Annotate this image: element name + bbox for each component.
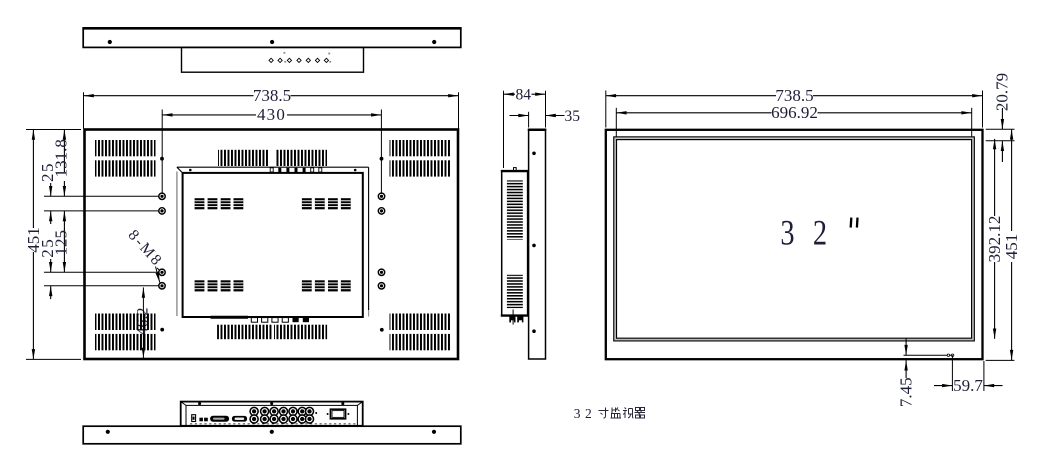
svg-text:696.92: 696.92 bbox=[771, 103, 818, 122]
svg-text:738.5: 738.5 bbox=[253, 86, 291, 105]
svg-text:451: 451 bbox=[1002, 234, 1021, 260]
svg-text:7.45: 7.45 bbox=[897, 377, 916, 407]
svg-text:84: 84 bbox=[515, 87, 531, 104]
svg-text:25: 25 bbox=[38, 162, 57, 182]
svg-text:3: 3 bbox=[780, 212, 794, 252]
svg-text:3: 3 bbox=[574, 406, 581, 421]
svg-text:35: 35 bbox=[565, 108, 581, 125]
svg-text:25: 25 bbox=[38, 238, 57, 258]
svg-text:2: 2 bbox=[813, 212, 827, 252]
svg-text:2: 2 bbox=[585, 406, 592, 421]
svg-text:59.7: 59.7 bbox=[953, 376, 983, 395]
svg-text:430: 430 bbox=[257, 105, 286, 124]
svg-text:20.79: 20.79 bbox=[993, 73, 1012, 111]
